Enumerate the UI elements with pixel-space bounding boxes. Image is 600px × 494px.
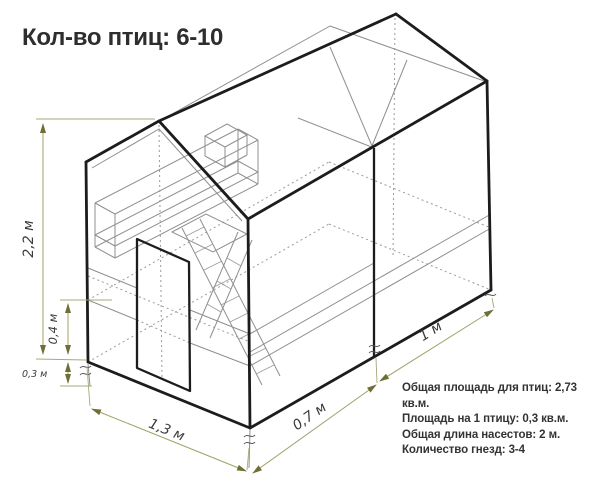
diagram-page: 2,2 м 0,4 м 0,3 м 1,3 м 0,7 м 1 м Кол-во…: [0, 0, 600, 494]
dim-nest-height: 0,4 м: [46, 313, 60, 344]
spec-total-area: Общая площадь для птиц: 2,73 кв.м.: [402, 381, 592, 412]
dimension-labels: 2,2 м 0,4 м 0,3 м 1,3 м 0,7 м 1 м: [21, 220, 446, 445]
door-opening: [137, 239, 190, 391]
dim-back-depth: 1 м: [416, 318, 445, 344]
dim-total-height: 2,2 м: [21, 220, 37, 258]
spec-perch-length: Общая длина насестов: 2 м.: [402, 428, 592, 444]
coop-outline: [86, 14, 491, 428]
dim-front-depth: 0,7 м: [290, 399, 330, 434]
page-title: Кол-во птиц: 6-10: [22, 24, 223, 52]
dim-front-width: 1,3 м: [146, 416, 187, 445]
spec-area-per-bird: Площадь на 1 птицу: 0,3 кв.м.: [402, 412, 592, 428]
spec-nest-count: Количество гнезд: 3-4: [402, 443, 592, 459]
specs-block: Общая площадь для птиц: 2,73 кв.м. Площа…: [402, 381, 592, 459]
dim-legs-height: 0,3 м: [22, 369, 47, 380]
